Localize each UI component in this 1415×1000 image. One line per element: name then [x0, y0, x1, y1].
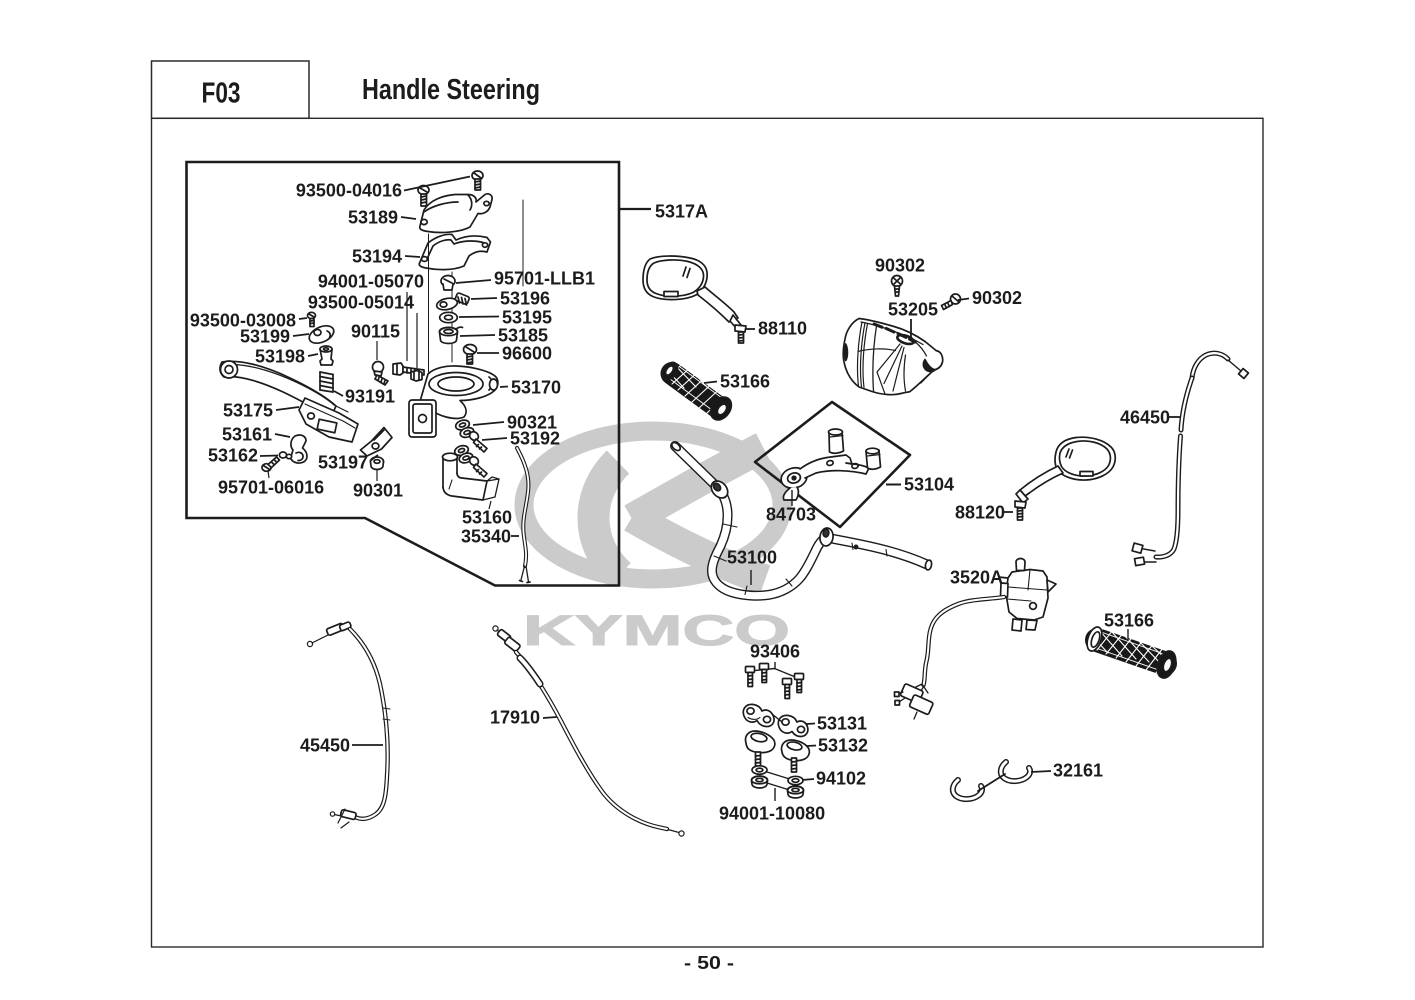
svg-text:35340: 35340	[461, 527, 511, 547]
svg-text:53162: 53162	[208, 446, 258, 466]
svg-text:17910: 17910	[490, 708, 540, 728]
svg-text:F03: F03	[202, 78, 241, 110]
svg-text:53175: 53175	[223, 401, 273, 421]
svg-text:53189: 53189	[348, 208, 398, 228]
svg-text:53170: 53170	[511, 378, 561, 398]
svg-text:94102: 94102	[816, 769, 866, 789]
svg-text:5317A: 5317A	[655, 202, 708, 222]
svg-text:94001-05070: 94001-05070	[318, 272, 424, 292]
svg-text:90301: 90301	[353, 481, 403, 501]
svg-text:53131: 53131	[817, 714, 867, 734]
svg-text:53192: 53192	[510, 429, 560, 449]
svg-text:90302: 90302	[875, 256, 925, 276]
svg-text:53199: 53199	[240, 327, 290, 347]
svg-text:32161: 32161	[1053, 761, 1103, 781]
svg-text:Handle Steering: Handle Steering	[362, 74, 540, 106]
svg-text:53166: 53166	[720, 372, 770, 392]
svg-text:3520A: 3520A	[950, 568, 1003, 588]
svg-text:53100: 53100	[727, 548, 777, 568]
svg-text:53185: 53185	[498, 326, 548, 346]
svg-text:- 50 -: - 50 -	[684, 953, 734, 973]
svg-text:90115: 90115	[351, 322, 400, 342]
svg-text:53104: 53104	[904, 475, 954, 495]
svg-text:88110: 88110	[758, 319, 807, 339]
svg-text:93500-04016: 93500-04016	[296, 181, 402, 201]
svg-text:95701-06016: 95701-06016	[218, 478, 324, 498]
svg-text:84703: 84703	[766, 505, 816, 525]
svg-text:53166: 53166	[1104, 611, 1154, 631]
svg-text:93500-05014: 93500-05014	[308, 293, 414, 313]
svg-text:53161: 53161	[222, 425, 272, 445]
svg-text:53198: 53198	[255, 347, 305, 367]
svg-text:53197: 53197	[318, 453, 368, 473]
svg-text:93406: 93406	[750, 642, 800, 662]
svg-text:53132: 53132	[818, 736, 868, 756]
svg-text:45450: 45450	[300, 736, 350, 756]
svg-text:93191: 93191	[345, 387, 395, 407]
svg-text:94001-10080: 94001-10080	[719, 804, 825, 824]
svg-text:53160: 53160	[462, 508, 512, 528]
svg-text:53196: 53196	[500, 289, 550, 309]
svg-text:90302: 90302	[972, 288, 1022, 308]
svg-text:53195: 53195	[502, 308, 552, 328]
svg-text:96600: 96600	[502, 344, 552, 364]
svg-text:53205: 53205	[888, 300, 938, 320]
svg-text:46450: 46450	[1120, 408, 1170, 428]
svg-text:88120: 88120	[955, 503, 1005, 523]
svg-text:95701-LLB1: 95701-LLB1	[494, 269, 595, 289]
svg-text:53194: 53194	[352, 247, 402, 267]
